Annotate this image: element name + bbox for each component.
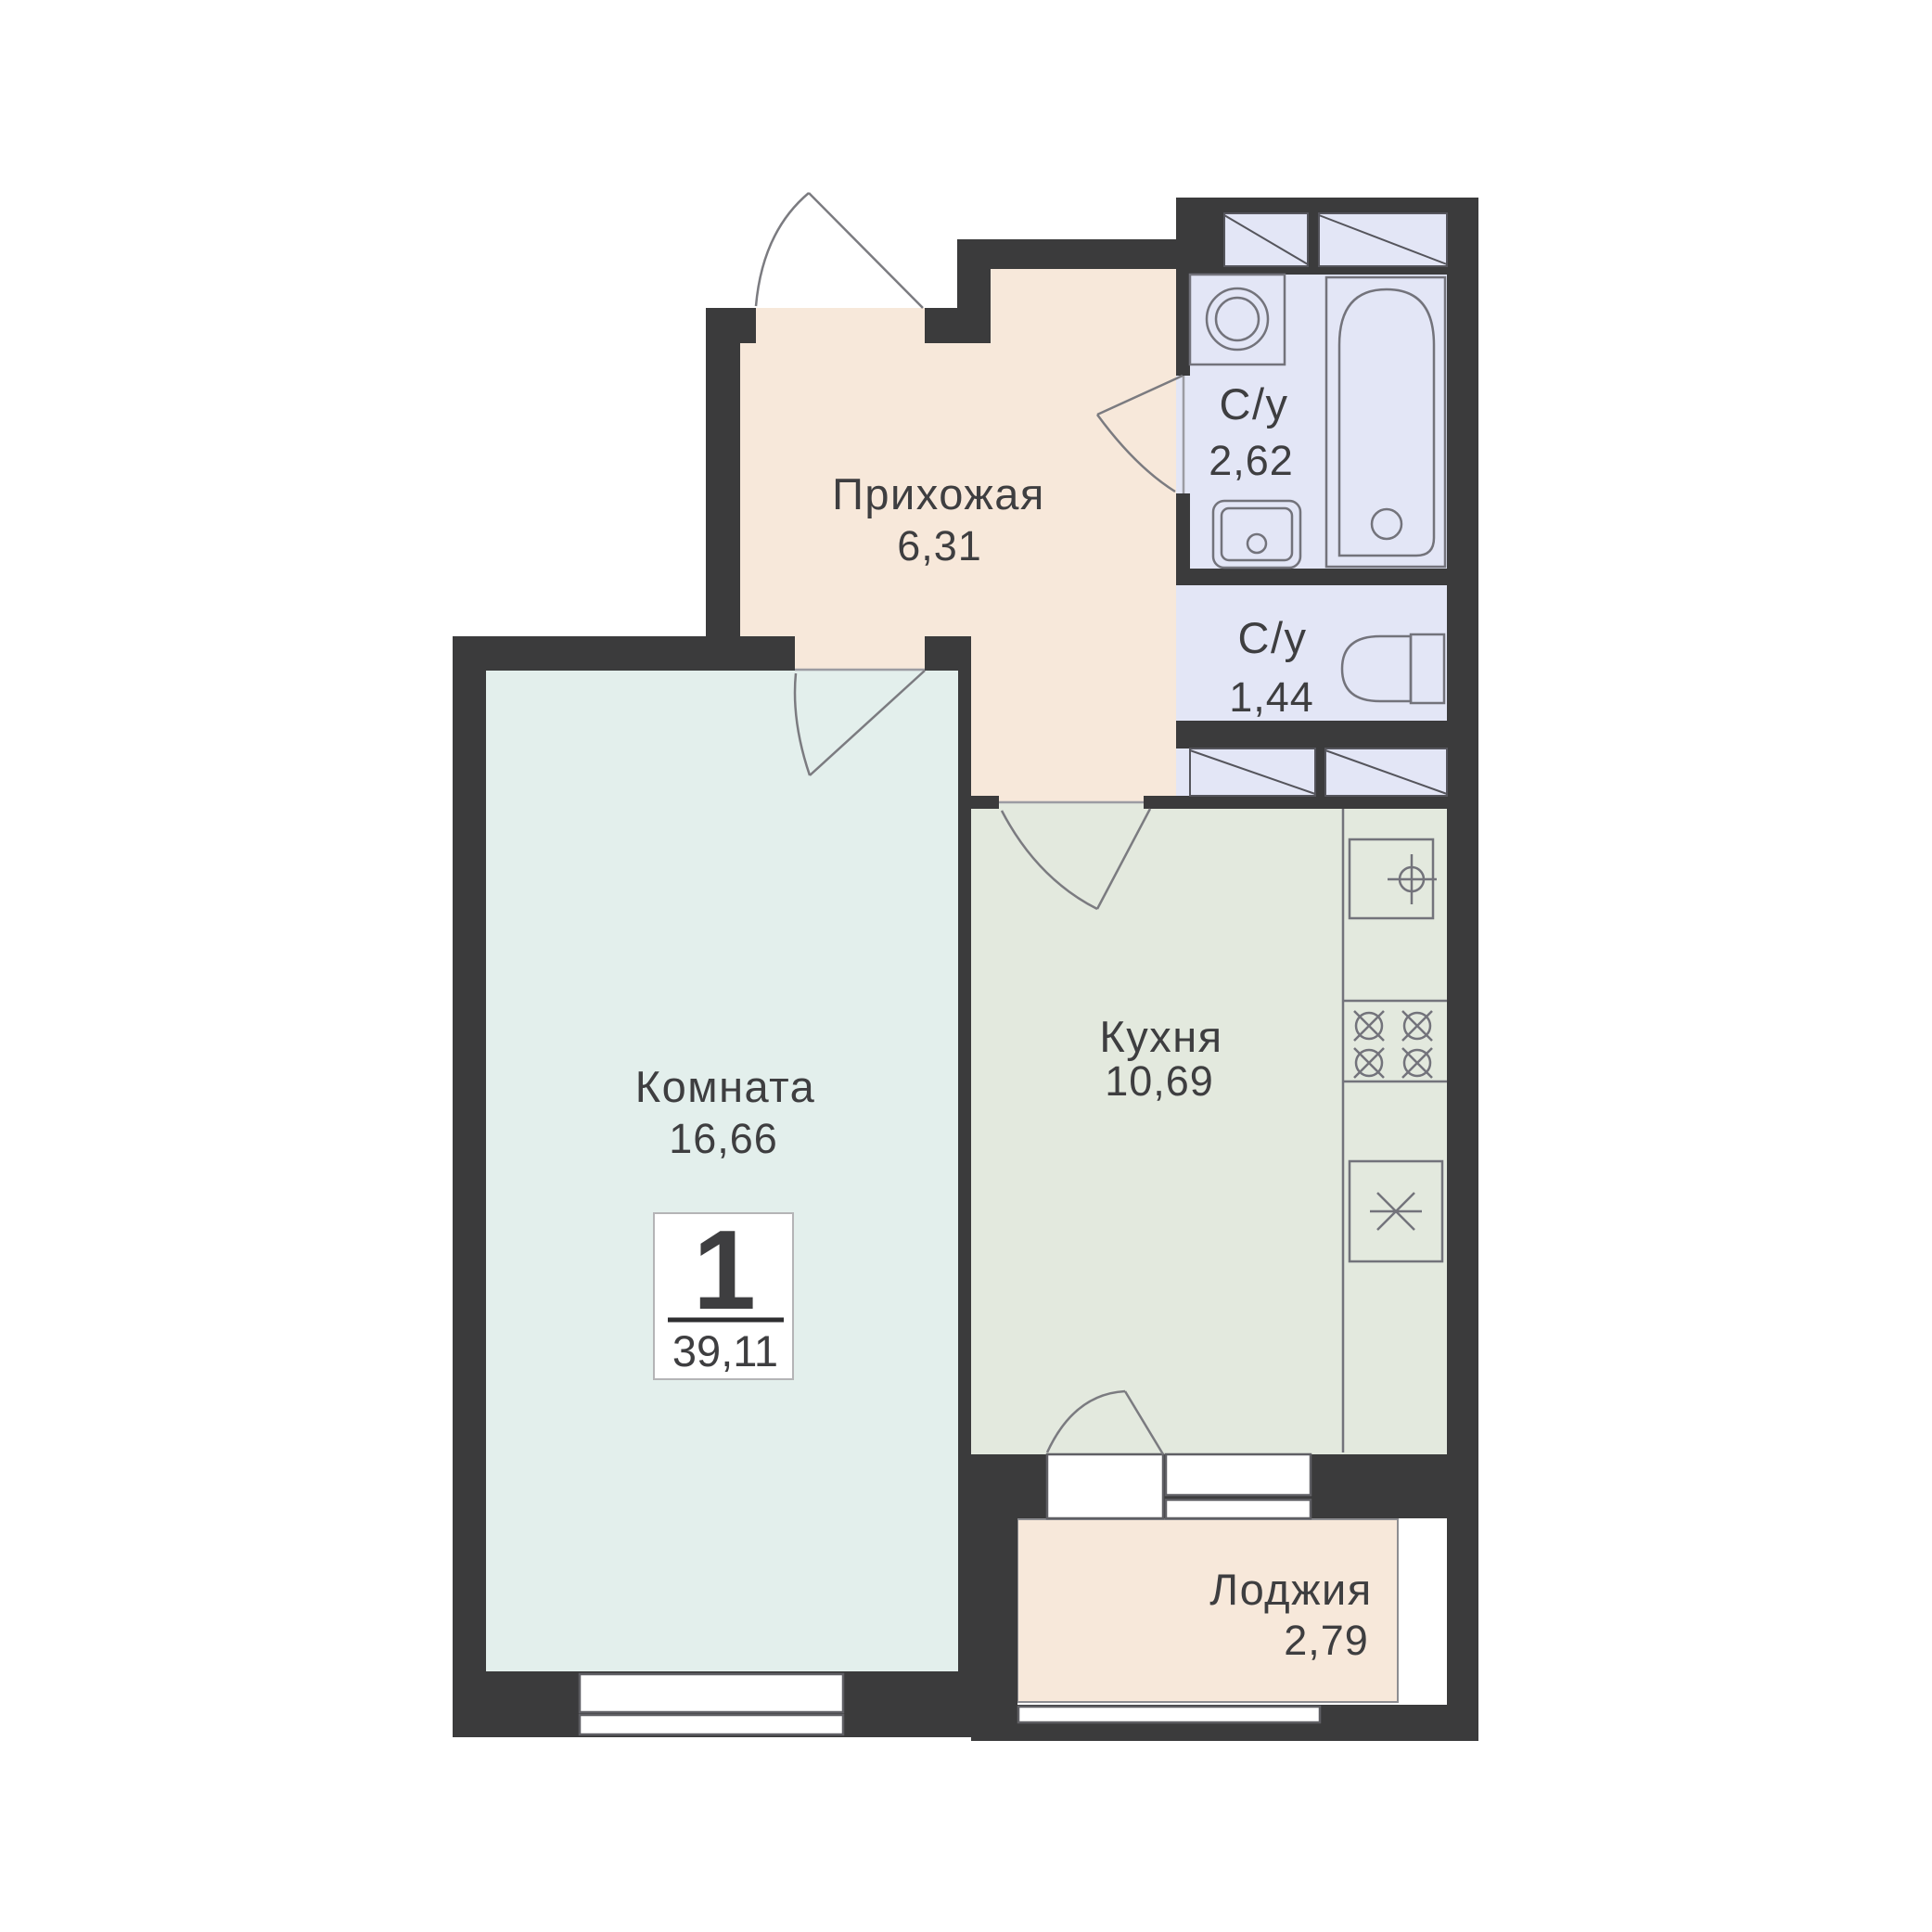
bathroom-name-label: С/у — [1220, 379, 1289, 429]
plan-badge: 1 39,11 — [654, 1207, 793, 1379]
badge-rooms-count: 1 — [693, 1207, 756, 1333]
kitchen-window — [1166, 1454, 1311, 1518]
kitchen-area-label: 10,69 — [1105, 1057, 1214, 1105]
living-room-area-label: 16,66 — [669, 1115, 778, 1162]
entrance-door-swing — [756, 193, 923, 308]
hallway-name-label: Прихожая — [832, 469, 1045, 518]
loggia-name-label: Лоджия — [1209, 1565, 1373, 1614]
kitchen-name-label: Кухня — [1099, 1012, 1222, 1061]
living-room-name-label: Комната — [635, 1062, 816, 1111]
vent-shaft-icon — [1190, 748, 1315, 796]
kitchen-floor — [971, 796, 1447, 1454]
loggia-glazing — [1018, 1707, 1320, 1722]
bathroom-area-label: 2,62 — [1209, 437, 1294, 484]
badge-total-area: 39,11 — [672, 1326, 778, 1375]
wc-name-label: С/у — [1238, 613, 1308, 662]
loggia-area-label: 2,79 — [1284, 1617, 1369, 1664]
wc-area-label: 1,44 — [1229, 673, 1314, 721]
hallway-area-label: 6,31 — [897, 522, 982, 569]
vent-shaft-icon — [1325, 748, 1447, 796]
room-window — [580, 1674, 843, 1734]
vent-shaft-icon — [1319, 213, 1447, 266]
balcony-door-leaf — [1047, 1454, 1163, 1518]
floor-plan-canvas: 1 39,11 Прихожая 6,31 С/у 2,62 С/у 1,44 … — [0, 0, 1932, 1932]
vent-shaft-icon — [1224, 213, 1308, 266]
floor-plan-page: 1 39,11 Прихожая 6,31 С/у 2,62 С/у 1,44 … — [0, 0, 1932, 1932]
